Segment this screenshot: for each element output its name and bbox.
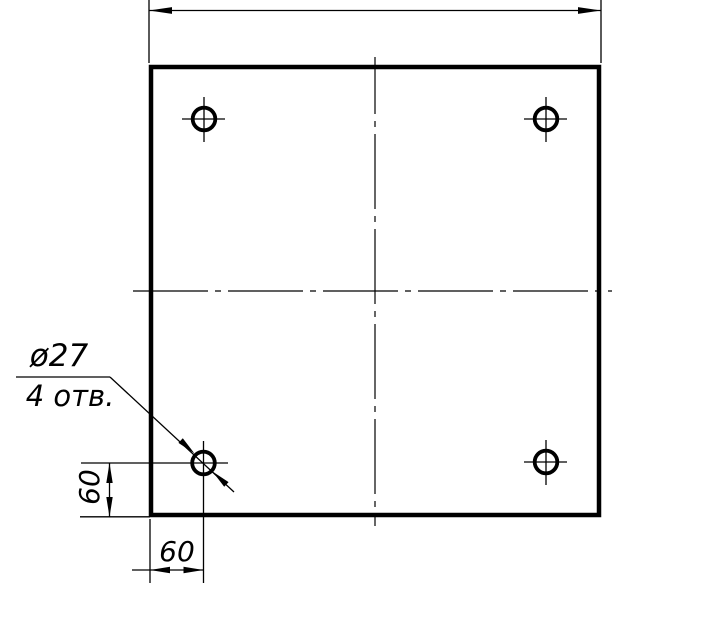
dimension-left-60: 60 (73, 463, 150, 517)
hole-bottom-right (524, 440, 567, 485)
hole-top-right (524, 97, 567, 142)
arrowhead-right-icon (578, 7, 601, 14)
dim-bottom-value: 60 (159, 535, 195, 568)
overall-width-dimension (149, 0, 601, 63)
hole-callout: ø27 4 отв. (16, 338, 234, 492)
arrowhead-down-icon (106, 497, 112, 517)
hole-diameter-label: ø27 (29, 338, 89, 374)
dim-left-value: 60 (73, 469, 106, 505)
arrowhead-left-icon (149, 7, 172, 14)
arrowhead-up-icon (106, 463, 112, 483)
drawing-canvas: ø27 4 отв. 60 60 (0, 0, 713, 631)
hole-top-left (182, 97, 225, 142)
hole-count-label: 4 отв. (26, 379, 115, 413)
leader-arrowhead-upper-icon (178, 438, 196, 456)
dimension-bottom-60: 60 (132, 519, 204, 583)
hole-bottom-left (81, 441, 228, 583)
plate-drawing: ø27 4 отв. 60 60 (0, 0, 713, 631)
